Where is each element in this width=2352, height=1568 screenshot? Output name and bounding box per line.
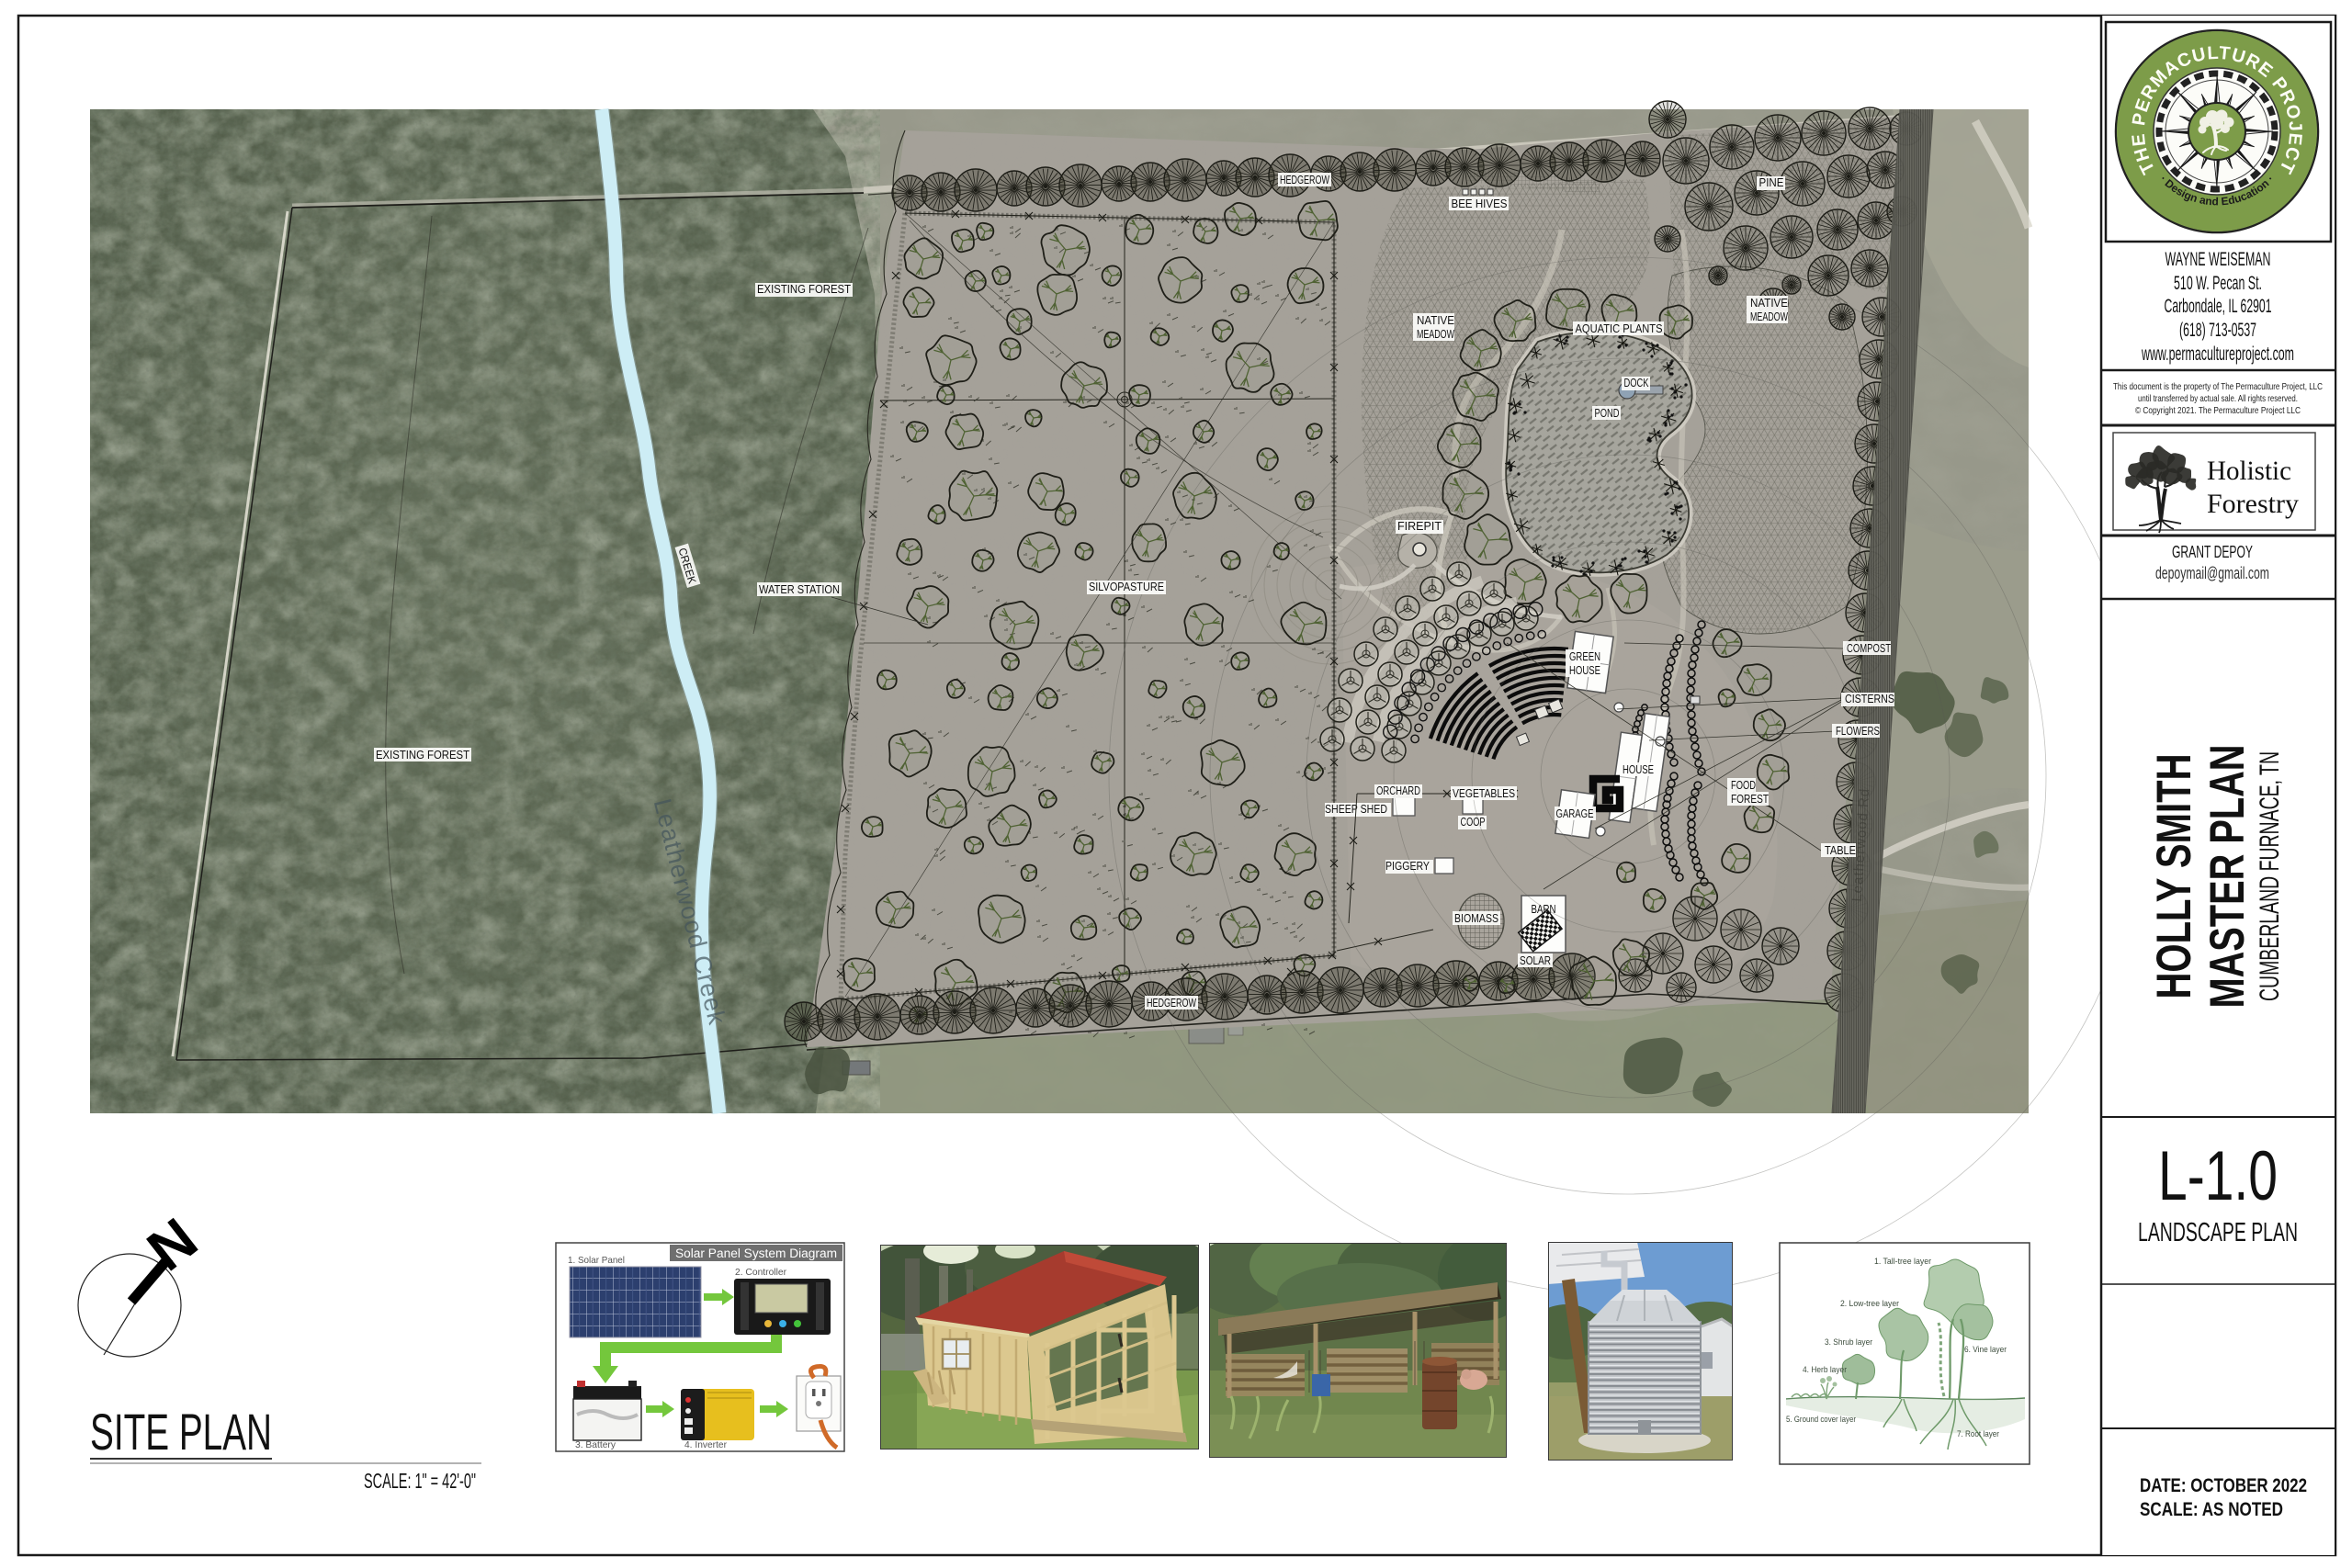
svg-text:1. Tall-tree layer: 1. Tall-tree layer [1874,1257,1931,1267]
svg-text:GRANT DEPOY: GRANT DEPOY [2172,542,2253,561]
svg-text:HOUSE: HOUSE [1569,663,1600,677]
svg-text:SOLAR: SOLAR [1520,953,1551,967]
svg-text:NATIVE: NATIVE [1750,296,1788,310]
svg-text:SILVOPASTURE: SILVOPASTURE [1089,580,1164,593]
svg-text:MEADOW: MEADOW [1750,310,1788,323]
svg-text:COMPOST: COMPOST [1847,641,1891,655]
svg-text:DOCK: DOCK [1624,376,1649,389]
svg-text:BIOMASS: BIOMASS [1454,911,1498,925]
svg-text:www.permacultureproject.com: www.permacultureproject.com [2141,344,2294,365]
svg-text:CUMBERLAND FURNACE, TN: CUMBERLAND FURNACE, TN [2255,751,2285,1001]
svg-text:SCALE: AS NOTED: SCALE: AS NOTED [2140,1499,2283,1520]
svg-text:SITE PLAN: SITE PLAN [90,1403,272,1461]
svg-text:MASTER PLAN: MASTER PLAN [2200,745,2255,1009]
svg-text:6. Vine layer: 6. Vine layer [1964,1345,2007,1355]
svg-text:PINE: PINE [1759,175,1784,189]
svg-text:Forestry: Forestry [2207,489,2299,519]
svg-text:7. Root layer: 7. Root layer [1957,1429,1999,1439]
svg-text:VEGETABLES: VEGETABLES [1453,786,1515,800]
svg-text:COOP: COOP [1461,815,1486,829]
svg-text:2. Controller: 2. Controller [735,1267,786,1278]
svg-text:HOUSE: HOUSE [1623,762,1654,776]
svg-text:PIGGERY: PIGGERY [1385,859,1430,873]
svg-text:HEDGEROW: HEDGEROW [1280,173,1330,186]
svg-text:NATIVE: NATIVE [1417,313,1454,327]
svg-text:BEE HIVES: BEE HIVES [1452,197,1508,210]
svg-text:4. Herb layer: 4. Herb layer [1803,1365,1847,1375]
svg-text:1. Solar Panel: 1. Solar Panel [568,1255,625,1266]
svg-text:LANDSCAPE PLAN: LANDSCAPE PLAN [2138,1218,2298,1247]
svg-text:FLOWERS: FLOWERS [1836,724,1880,738]
svg-text:TABLE: TABLE [1825,843,1856,857]
svg-text:depoymail@gmail.com: depoymail@gmail.com [2155,563,2269,582]
svg-text:(618) 713-0537: (618) 713-0537 [2179,320,2256,341]
svg-text:L-1.0: L-1.0 [2158,1137,2278,1215]
svg-text:WAYNE WEISEMAN: WAYNE WEISEMAN [2165,249,2271,270]
svg-text:5. Ground cover layer: 5. Ground cover layer [1786,1415,1856,1425]
svg-text:FIREPIT: FIREPIT [1397,519,1442,533]
svg-text:4. Inverter: 4. Inverter [684,1439,727,1450]
svg-text:3. Shrub layer: 3. Shrub layer [1825,1337,1872,1348]
svg-text:2. Low-tree layer: 2. Low-tree layer [1840,1299,1899,1309]
svg-text:EXISTING FOREST: EXISTING FOREST [757,282,851,296]
svg-text:GARAGE: GARAGE [1556,807,1594,820]
svg-text:GREEN: GREEN [1569,649,1600,663]
svg-text:MEADOW: MEADOW [1417,327,1454,341]
svg-text:CISTERNS: CISTERNS [1845,692,1894,705]
svg-text:Solar Panel System Diagram: Solar Panel System Diagram [675,1247,837,1260]
svg-text:Holistic: Holistic [2207,456,2291,486]
svg-text:© Copyright 2021. The Permacul: © Copyright 2021. The Permaculture Proje… [2135,405,2301,416]
svg-text:FOOD: FOOD [1731,778,1756,792]
svg-text:SCALE: 1" = 42'-0": SCALE: 1" = 42'-0" [364,1469,476,1493]
svg-text:until transferred by actual sa: until transferred by actual sale. All ri… [2138,393,2298,404]
svg-text:ORCHARD: ORCHARD [1376,784,1420,797]
svg-text:Carbondale, IL 62901: Carbondale, IL 62901 [2165,296,2272,317]
svg-text:DATE: OCTOBER 2022: DATE: OCTOBER 2022 [2140,1475,2307,1496]
svg-text:FOREST: FOREST [1731,792,1769,806]
svg-text:HOLLY SMITH: HOLLY SMITH [2147,754,2201,999]
svg-text:POND: POND [1595,406,1620,420]
svg-text:510 W. Pecan St.: 510 W. Pecan St. [2174,273,2262,294]
svg-text:This document is the property: This document is the property of The Per… [2113,381,2323,392]
svg-text:EXISTING FOREST: EXISTING FOREST [376,748,469,761]
svg-text:HEDGEROW: HEDGEROW [1147,996,1197,1010]
svg-text:AQUATIC PLANTS: AQUATIC PLANTS [1576,321,1663,335]
svg-text:3. Battery: 3. Battery [575,1439,616,1450]
svg-text:WATER STATION: WATER STATION [759,582,840,596]
